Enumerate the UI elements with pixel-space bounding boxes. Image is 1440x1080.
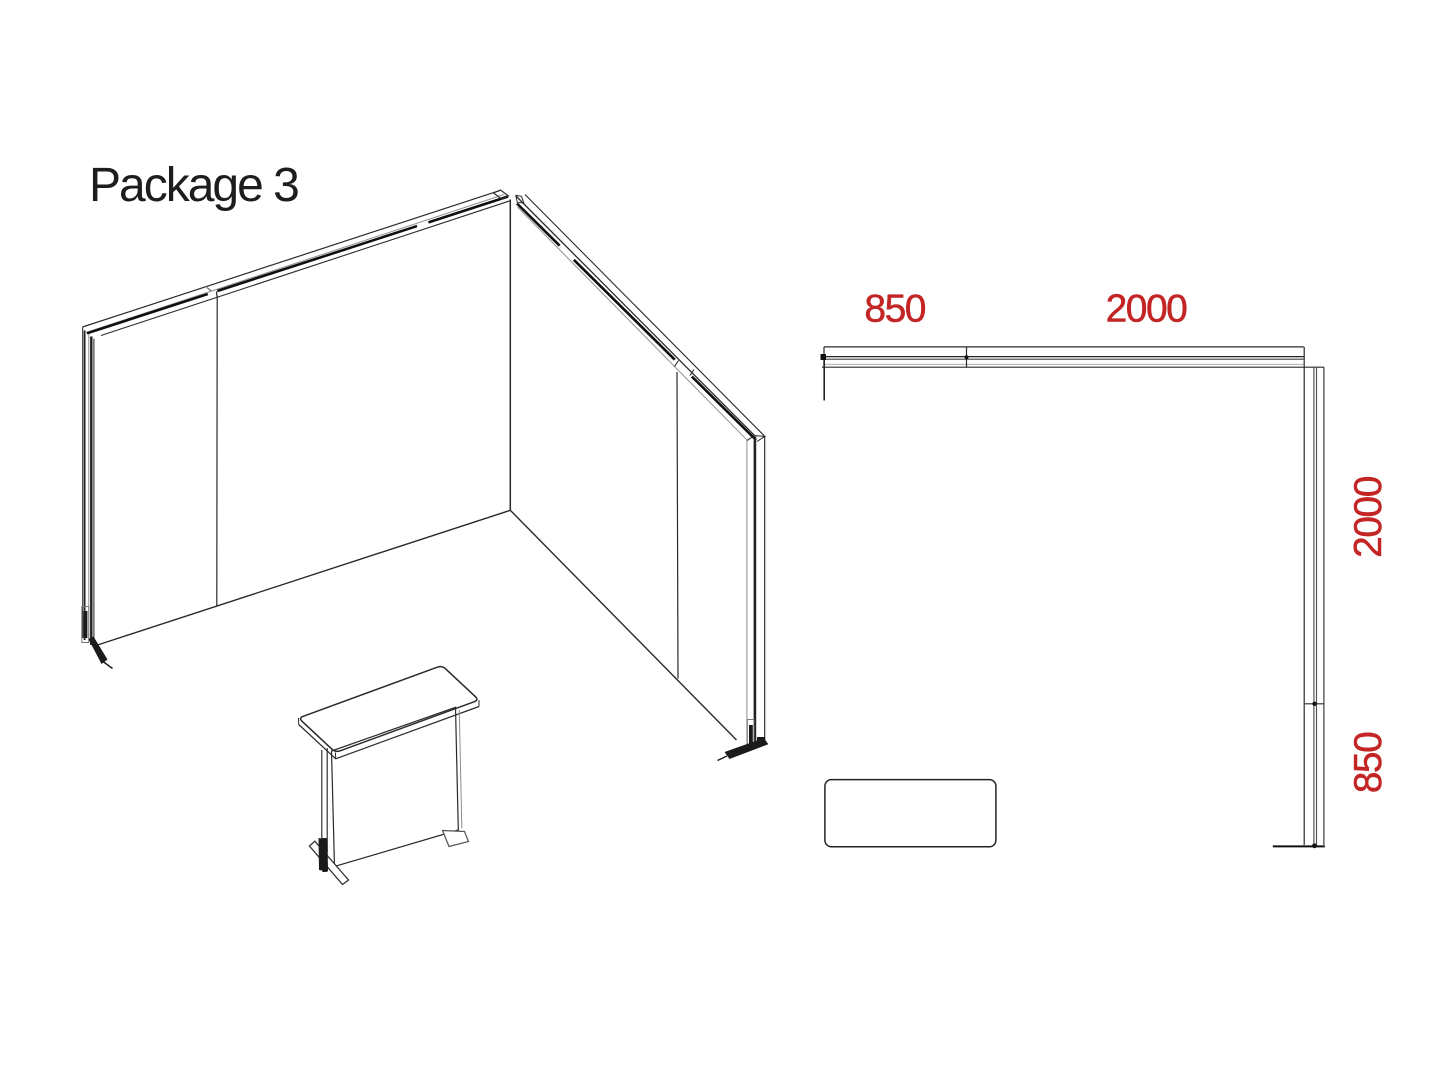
svg-text:850: 850 [864, 288, 925, 331]
svg-text:2000: 2000 [1347, 476, 1390, 558]
svg-text:Package 3: Package 3 [89, 159, 298, 212]
svg-text:850: 850 [1347, 732, 1390, 793]
svg-text:2000: 2000 [1106, 288, 1188, 331]
